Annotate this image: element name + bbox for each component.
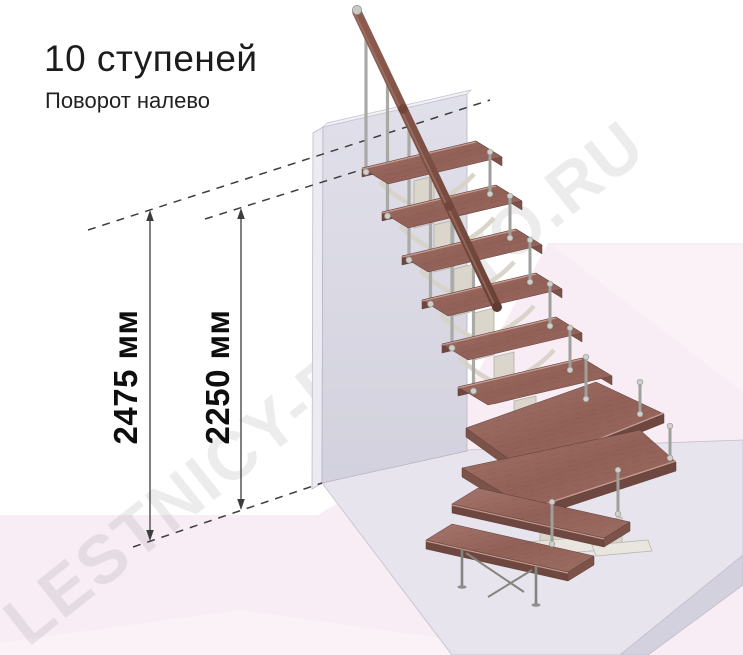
handrail-ferrule [352,5,361,14]
ball-joint [583,396,589,402]
baluster-ball-joint [471,388,477,394]
ball-joint [615,467,621,473]
ball-joint [549,499,555,505]
ball-joint [549,541,555,547]
ball-joint [547,281,553,287]
arrow-up-icon [237,208,245,219]
diagram-canvas: LESTNICY-PROSTO.RU 2475 мм 2250 мм [0,0,743,655]
handrail-joint [398,104,408,114]
ball-joint [667,455,673,461]
ball-joint [487,149,493,155]
ball-joint [637,411,643,417]
page-subtitle: Поворот налево [45,88,210,114]
dimension-label-flight: 2250 мм [199,310,236,445]
handrail-joint [444,201,454,211]
ball-joint [615,511,621,517]
ball-joint [527,279,533,285]
baluster-ball-joint [449,345,455,351]
ball-joint [583,354,589,360]
leg-foot [532,603,541,607]
ball-joint [507,193,513,199]
ball-joint [547,323,553,329]
baluster-ball-joint [385,213,391,219]
ball-joint [567,367,573,373]
leg-foot [458,585,467,589]
dimension-label-total: 2475 мм [107,310,144,445]
ball-joint [567,325,573,331]
arrow-down-icon [237,499,245,510]
baluster-ball-joint [363,169,369,175]
handrail-end-cap [492,302,502,312]
baluster-ball-joint [406,257,412,263]
wall-side-face [312,127,323,489]
baluster-ball-joint [428,301,434,307]
ball-joint [487,191,493,197]
page-title: 10 ступеней [44,38,258,80]
ball-joint [507,235,513,241]
arrow-up-icon [146,210,154,221]
ball-joint [637,379,643,385]
ball-joint [667,423,673,429]
ball-joint [527,237,533,243]
